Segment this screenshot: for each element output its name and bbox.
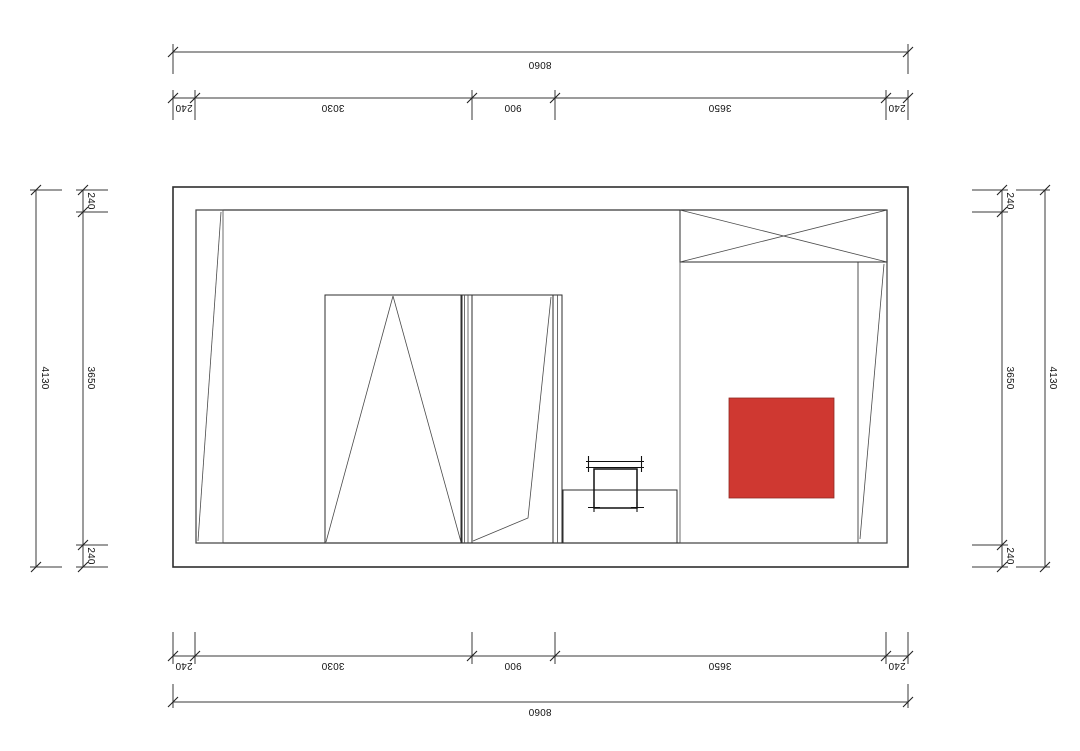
dim-right-seg-label: 240 [1004,547,1014,564]
right-door-swing-line [860,264,884,539]
crossed-box-diagonals [680,210,887,262]
window-mullion-lines [465,295,469,543]
table-symbol [594,469,637,508]
red-square [729,398,834,498]
right-door-panel [858,262,887,543]
floor-plan-canvas: 8060 240 3030 900 3650 240 240 3030 900 … [0,0,1080,751]
window-panel-b-opening-lines [473,297,551,541]
window-panel-b [472,295,553,543]
dim-bottom-overall-extensions [173,684,908,708]
dim-top-seg-label: 900 [504,102,521,112]
dim-right-seg-label: 240 [1004,192,1014,209]
dim-top-overall-label: 8060 [528,59,551,69]
dim-bottom-seg-label: 3650 [708,660,731,670]
dim-top-seg-label: 3030 [321,102,344,112]
outer-wall [173,187,908,567]
dim-bottom-seg-label: 3030 [321,660,344,670]
dim-left-seg-label: 3650 [85,366,95,389]
dim-top-seg-label: 240 [888,102,905,112]
dim-right-overall-label: 4130 [1047,366,1057,389]
dim-left-overall-label: 4130 [39,366,49,389]
dim-bottom-seg-label: 900 [504,660,521,670]
dim-top-seg-label: 3650 [708,102,731,112]
dim-bottom-seg-label: 240 [888,660,905,670]
window-panel-a-opening-lines [326,296,461,542]
dim-bottom-seg-label: 240 [175,660,192,670]
dim-right-seg-label: 3650 [1004,366,1014,389]
dim-top-seg-label: 240 [175,102,192,112]
dim-left-seg-label: 240 [85,192,95,209]
dim-top-chain-extensions [173,90,908,120]
table-top-edge [586,462,644,468]
plan-drawing [0,0,1080,751]
dim-left-seg-label: 240 [85,547,95,564]
dim-bottom-chain-extensions [173,632,908,664]
dim-bottom-overall-label: 8060 [528,706,551,716]
table-leg-ticks [588,502,644,512]
dim-right-chain-extensions [972,190,1008,567]
window-panel-a [325,295,462,543]
left-door-swing-line [198,212,221,541]
blue-floor-patch [563,490,677,543]
window-mullion [461,295,472,543]
